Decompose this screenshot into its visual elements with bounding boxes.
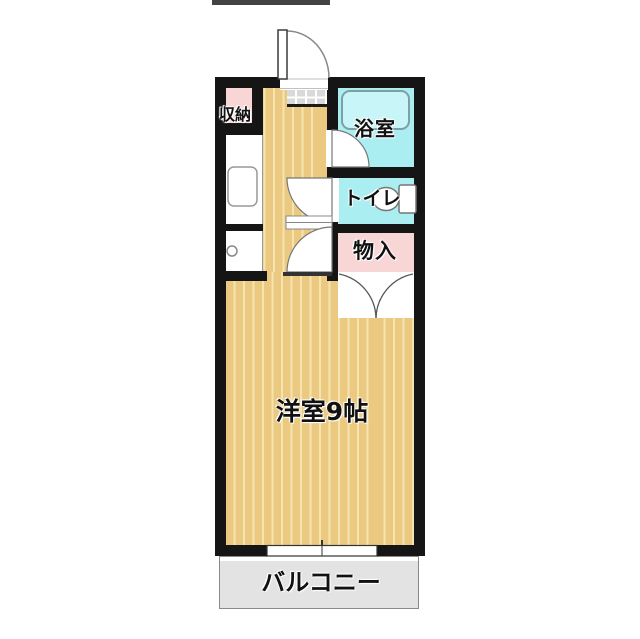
main-room-label: 洋室9帖: [276, 392, 368, 428]
room-door-threshold: [283, 272, 332, 276]
bathroom-label: 浴室: [354, 113, 396, 142]
closet-label: 物入: [353, 235, 397, 265]
window-icon: [267, 540, 377, 561]
closet-double-door-icon: [338, 272, 414, 318]
entrance-door-icon: [278, 30, 329, 79]
storage-label: 収納: [219, 101, 251, 125]
washer-faucet-icon: [227, 246, 237, 256]
room-door-swing-icon: [287, 227, 332, 272]
floor-plan: 収納 浴室 トイレ 物入 洋室9帖 バルコニー: [0, 0, 640, 639]
balcony-label: バルコニー: [261, 563, 381, 598]
toilet-label: トイレ: [343, 184, 400, 211]
sink-icon: [228, 167, 257, 206]
fixtures-overlay: [0, 0, 640, 639]
